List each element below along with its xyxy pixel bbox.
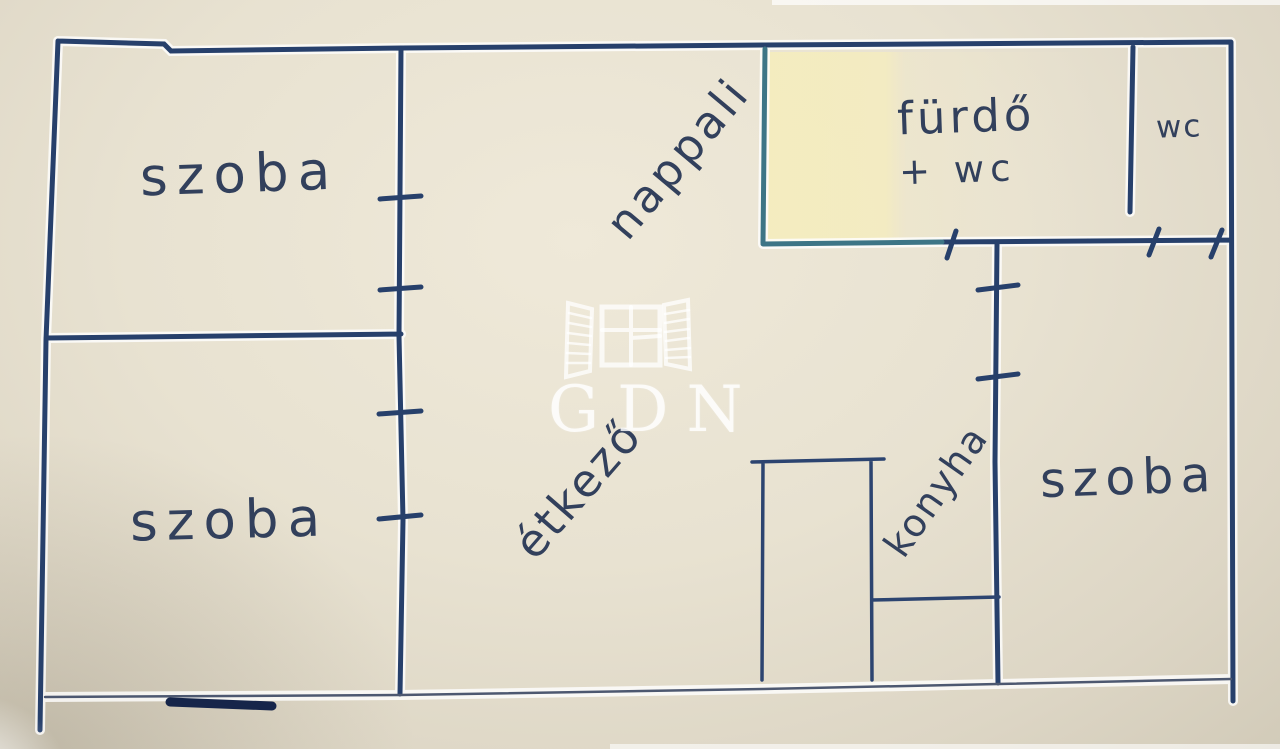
room-label-furdo-line2: + wc (898, 149, 1037, 191)
window-shutters-icon (566, 300, 690, 377)
room-label-szoba-top-left: szoba (139, 145, 340, 205)
room-label-furdo-line1: fürdő (896, 88, 1036, 146)
room-label-szoba-right: szoba (1039, 450, 1218, 505)
room-label-furdo: fürdő + wc (896, 92, 1037, 191)
bottom-window-mark (170, 702, 272, 706)
room-label-wc: wc (1155, 111, 1202, 144)
floorplan-photo: szoba szoba nappali fürdő + wc wc étkező… (0, 0, 1280, 749)
room-label-szoba-bottom-left: szoba (129, 491, 329, 549)
watermark-text: GDN (548, 378, 760, 442)
